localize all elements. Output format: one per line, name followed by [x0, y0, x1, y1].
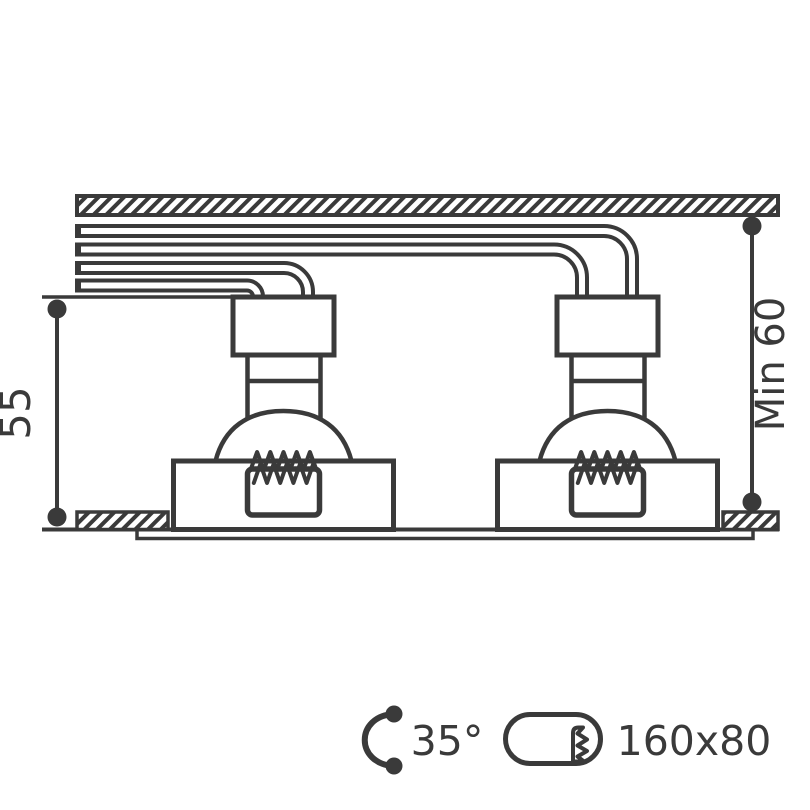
tilt-angle-icon — [365, 714, 394, 766]
junction-box — [233, 297, 334, 355]
junction-box — [557, 297, 658, 355]
cutout-spec: 160x80 — [506, 715, 772, 766]
tilt-arc-dot — [386, 758, 403, 775]
fixture-right — [498, 297, 718, 530]
ceiling-board-left — [77, 512, 168, 530]
cutout-breakline — [573, 728, 587, 762]
dimension-label-min60: Min 60 — [748, 297, 794, 432]
tilt-angle-label: 35° — [411, 717, 484, 765]
tilt-arc-dot — [386, 706, 403, 723]
fixture-left — [174, 297, 394, 530]
dimension-dot — [48, 508, 67, 527]
technical-drawing: 55 Min 60 35° 160x80 — [0, 0, 810, 810]
dimension-55: 55 — [0, 300, 67, 527]
diagram-canvas: 55 Min 60 35° 160x80 — [0, 0, 810, 810]
supply-cables — [75, 231, 632, 297]
dimension-dot — [743, 217, 762, 236]
dimension-label-55: 55 — [0, 386, 40, 439]
dimension-min60: Min 60 — [743, 217, 795, 512]
dimension-dot — [743, 493, 762, 512]
dimension-dot — [48, 300, 67, 319]
tilt-angle-spec: 35° — [365, 706, 484, 775]
cutout-size-label: 160x80 — [617, 717, 772, 765]
ceiling-board-right — [723, 512, 778, 530]
ceiling-slab — [77, 196, 778, 215]
